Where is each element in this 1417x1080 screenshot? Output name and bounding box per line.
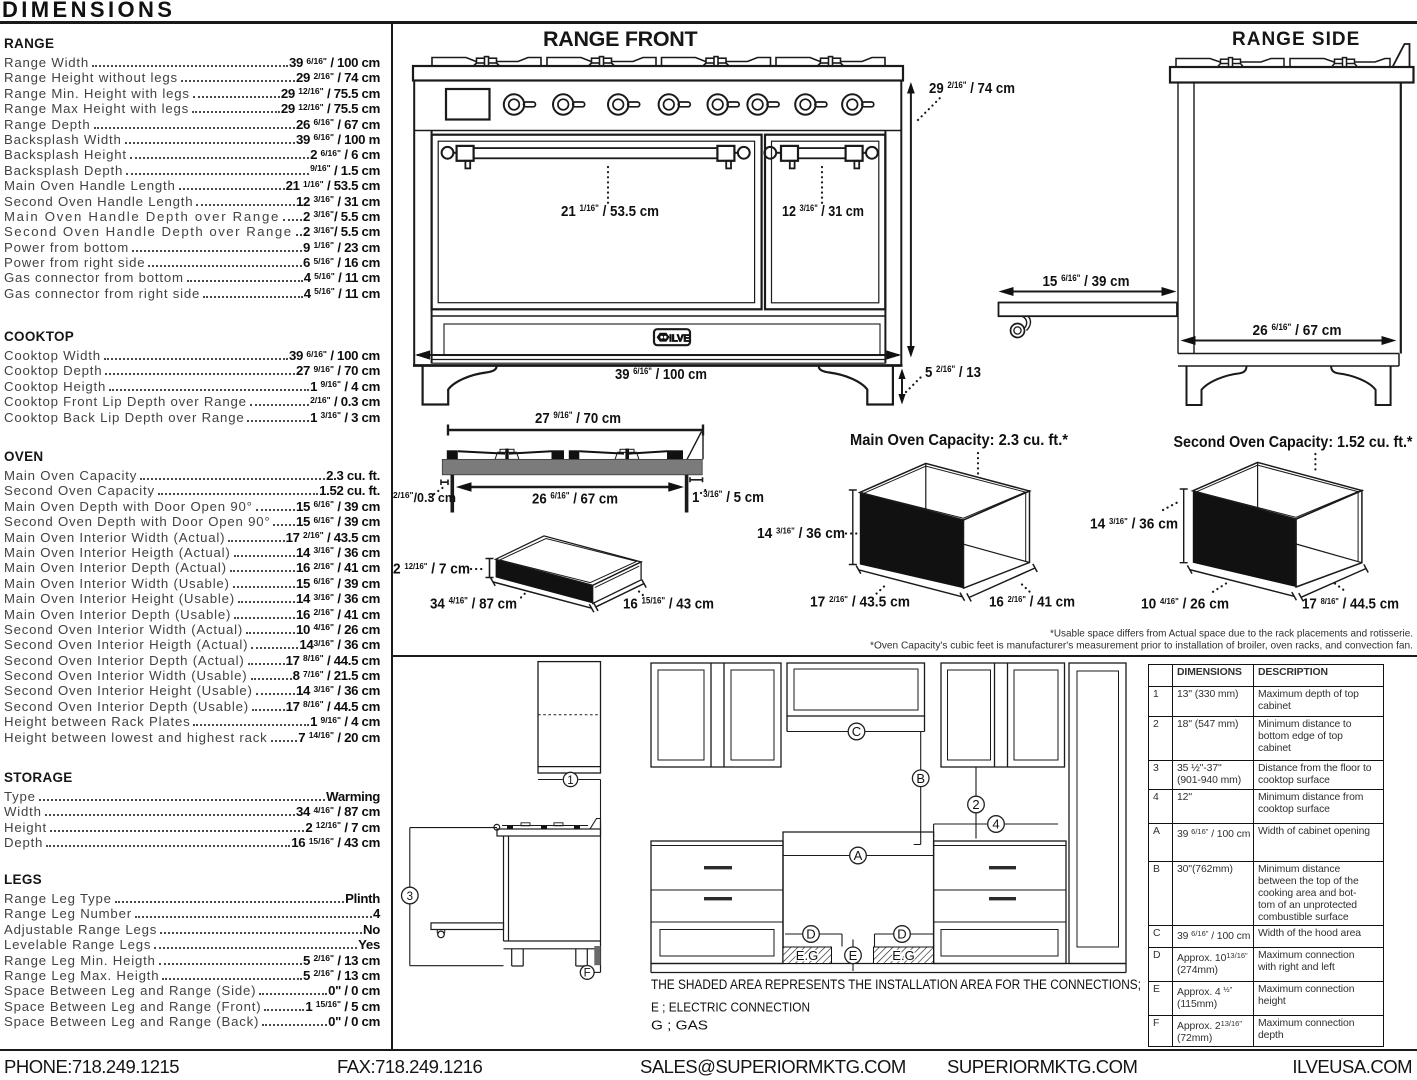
svg-text:*Oven Capacity's cubic feet is: *Oven Capacity's cubic feet is manufactu… xyxy=(870,640,1413,652)
svg-text:12 3/16" / 31 cm: 12 3/16" / 31 cm xyxy=(782,203,864,220)
svg-text:16 2/16" / 41 cm: 16 2/16" / 41 cm xyxy=(989,594,1075,611)
svg-text:1 3/16" / 5 cm: 1 3/16" / 5 cm xyxy=(692,489,764,506)
svg-text:E ; ELECTRIC CONNECTION: E ; ELECTRIC CONNECTION xyxy=(651,1000,810,1015)
svg-text:G ; GAS: G ; GAS xyxy=(651,1018,708,1033)
svg-text:17 8/16" / 44.5 cm: 17 8/16" / 44.5 cm xyxy=(1302,596,1399,613)
svg-text:3: 3 xyxy=(407,891,413,903)
svg-text:*Usable space differs from Act: *Usable space differs from Actual space … xyxy=(1050,628,1413,640)
svg-text:Second Oven Capacity: 1.52 cu.: Second Oven Capacity: 1.52 cu. ft.* xyxy=(1174,434,1414,451)
svg-text:29 2/16" / 74 cm: 29 2/16" / 74 cm xyxy=(929,80,1015,97)
svg-text:THE SHADED AREA REPRESENTS THE: THE SHADED AREA REPRESENTS THE INSTALLAT… xyxy=(651,977,1141,992)
svg-text:10 4/16" / 26 cm: 10 4/16" / 26 cm xyxy=(1141,596,1229,613)
svg-text:26 6/16" / 67 cm: 26 6/16" / 67 cm xyxy=(1253,322,1342,339)
svg-text:E.G: E.G xyxy=(796,948,818,963)
svg-text:14 3/16" / 36 cm: 14 3/16" / 36 cm xyxy=(757,525,845,542)
svg-text:5 2/16" / 13: 5 2/16" / 13 xyxy=(925,364,981,381)
svg-text:B: B xyxy=(916,771,925,786)
svg-text:E: E xyxy=(849,948,858,963)
svg-text:A: A xyxy=(854,848,863,863)
svg-text:16 15/16" / 43 cm: 16 15/16" / 43 cm xyxy=(623,596,714,613)
svg-text:D: D xyxy=(806,927,815,942)
svg-text:C: C xyxy=(852,724,861,739)
svg-text:2: 2 xyxy=(972,797,979,812)
svg-text:39 6/16" / 100 cm: 39 6/16" / 100 cm xyxy=(615,366,707,383)
svg-text:Main Oven Capacity: 2.3 cu. ft: Main Oven Capacity: 2.3 cu. ft.* xyxy=(850,432,1069,449)
svg-text:1: 1 xyxy=(567,775,573,787)
svg-text:14 3/16" / 36 cm: 14 3/16" / 36 cm xyxy=(1090,516,1178,533)
svg-text:26 6/16" / 67 cm: 26 6/16" / 67 cm xyxy=(532,491,618,508)
svg-text:21 1/16" / 53.5 cm: 21 1/16" / 53.5 cm xyxy=(561,203,659,220)
svg-text:D: D xyxy=(897,927,906,942)
svg-text:15 6/16" / 39 cm: 15 6/16" / 39 cm xyxy=(1043,273,1130,290)
svg-text:ILVE: ILVE xyxy=(669,334,690,345)
svg-text:17 2/16" / 43.5 cm: 17 2/16" / 43.5 cm xyxy=(810,594,910,611)
svg-text:2 12/16" / 7 cm: 2 12/16" / 7 cm xyxy=(393,561,470,578)
svg-text:E.G: E.G xyxy=(892,948,914,963)
svg-text:4: 4 xyxy=(992,817,999,832)
svg-text:34 4/16" / 87 cm: 34 4/16" / 87 cm xyxy=(430,596,517,613)
svg-text:2/16"/0.3 cm: 2/16"/0.3 cm xyxy=(393,490,456,505)
svg-text:27 9/16" / 70 cm: 27 9/16" / 70 cm xyxy=(535,410,621,427)
svg-text:F: F xyxy=(584,968,591,980)
